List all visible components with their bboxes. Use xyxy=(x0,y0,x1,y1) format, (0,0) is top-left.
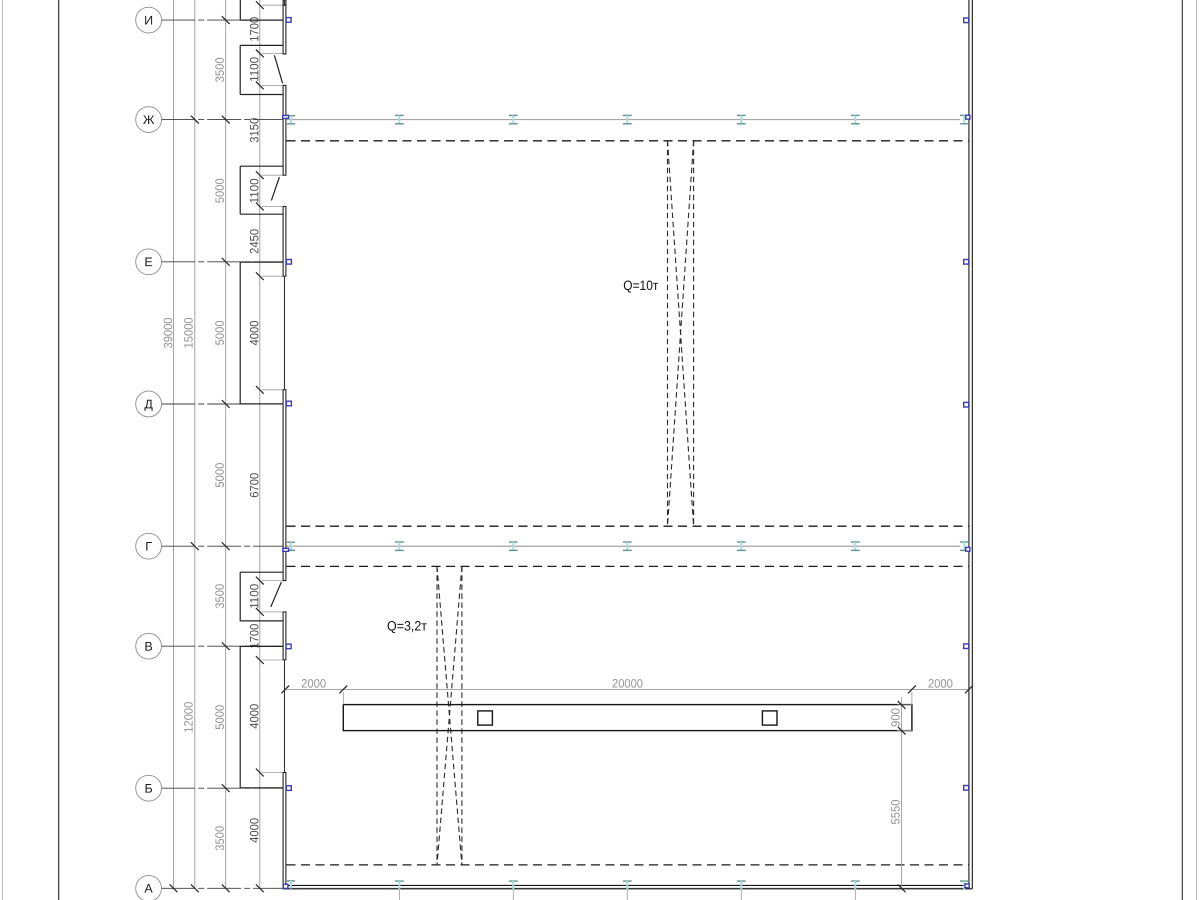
svg-text:4000: 4000 xyxy=(247,818,261,843)
svg-text:Q=10т: Q=10т xyxy=(623,278,658,293)
svg-text:15000: 15000 xyxy=(182,317,196,348)
svg-text:В: В xyxy=(144,640,152,654)
svg-text:Д: Д xyxy=(144,397,153,411)
svg-text:Ж: Ж xyxy=(143,113,155,127)
svg-text:2000: 2000 xyxy=(301,677,326,691)
svg-text:12000: 12000 xyxy=(182,701,196,732)
svg-text:3500: 3500 xyxy=(213,826,227,851)
svg-text:3500: 3500 xyxy=(213,57,227,82)
svg-text:39000: 39000 xyxy=(161,317,175,348)
svg-text:Е: Е xyxy=(144,255,152,269)
svg-text:Q=3,2т: Q=3,2т xyxy=(387,618,427,633)
svg-text:Б: Б xyxy=(144,782,152,796)
svg-text:5000: 5000 xyxy=(213,462,227,487)
svg-text:3150: 3150 xyxy=(247,118,261,143)
svg-text:1700: 1700 xyxy=(247,623,261,648)
svg-text:3500: 3500 xyxy=(213,583,227,608)
svg-text:Г: Г xyxy=(145,540,152,554)
svg-text:5550: 5550 xyxy=(889,799,903,824)
svg-text:2450: 2450 xyxy=(247,229,261,254)
svg-text:4000: 4000 xyxy=(247,320,261,345)
svg-text:И: И xyxy=(144,13,153,27)
svg-text:5000: 5000 xyxy=(213,178,227,203)
svg-text:5000: 5000 xyxy=(213,704,227,729)
svg-text:6700: 6700 xyxy=(247,472,261,497)
svg-text:1100: 1100 xyxy=(247,57,261,82)
svg-text:900: 900 xyxy=(889,708,903,727)
svg-text:1100: 1100 xyxy=(247,178,261,203)
svg-text:5000: 5000 xyxy=(213,320,227,345)
svg-text:2000: 2000 xyxy=(928,677,953,691)
svg-text:А: А xyxy=(144,882,153,896)
svg-text:4000: 4000 xyxy=(247,704,261,729)
svg-text:20000: 20000 xyxy=(612,677,643,691)
svg-text:1100: 1100 xyxy=(247,584,261,609)
